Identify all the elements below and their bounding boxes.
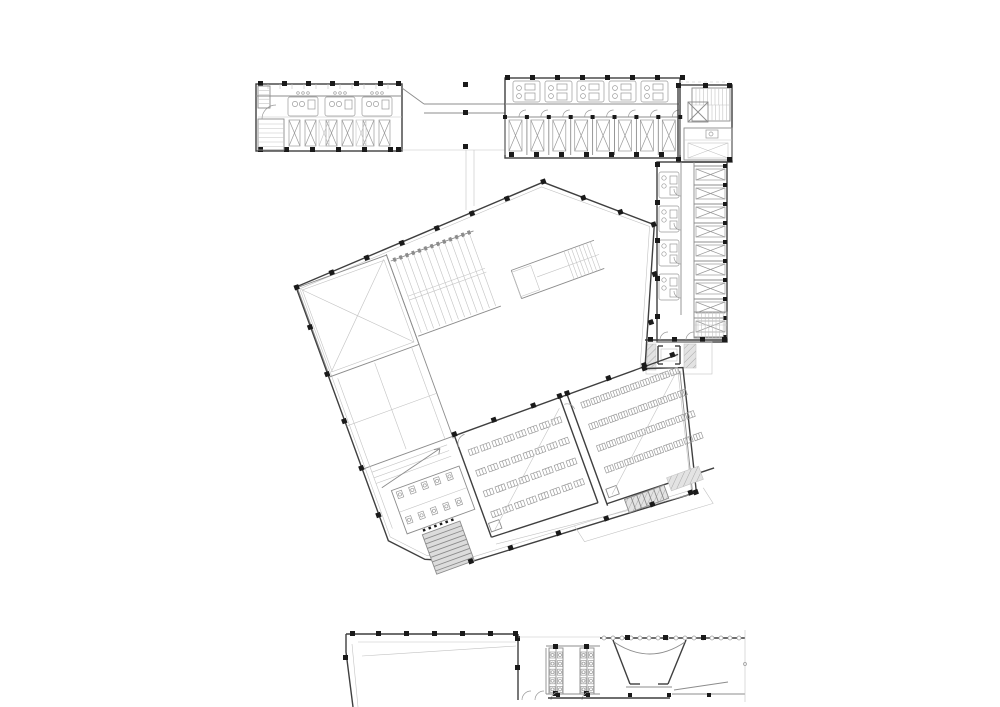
- column: [723, 221, 727, 225]
- column: [634, 115, 638, 119]
- column: [722, 337, 727, 342]
- column: [628, 693, 632, 697]
- hatched-stair: [684, 344, 696, 368]
- column: [509, 152, 514, 157]
- column: [258, 147, 263, 152]
- floor-plan-page: [0, 0, 1000, 707]
- column: [680, 75, 685, 80]
- column: [534, 152, 539, 157]
- column: [591, 115, 595, 119]
- arc-column: [737, 636, 741, 640]
- column: [625, 635, 630, 640]
- arc-column: [611, 636, 615, 640]
- column: [555, 75, 560, 80]
- column: [343, 655, 348, 660]
- column: [354, 81, 359, 86]
- column: [505, 75, 510, 80]
- column: [569, 115, 573, 119]
- column: [282, 81, 287, 86]
- column: [584, 152, 589, 157]
- column: [378, 81, 383, 86]
- column: [723, 259, 727, 263]
- column: [634, 152, 639, 157]
- column: [463, 82, 468, 87]
- column: [723, 240, 727, 244]
- column: [503, 115, 507, 119]
- column: [284, 147, 289, 152]
- column: [723, 164, 727, 168]
- column: [655, 200, 660, 205]
- column: [556, 693, 560, 697]
- column: [388, 147, 393, 152]
- column: [463, 110, 468, 115]
- column: [630, 75, 635, 80]
- column: [330, 81, 335, 86]
- column: [723, 297, 727, 301]
- column: [707, 693, 711, 697]
- column: [530, 75, 535, 80]
- column: [432, 631, 437, 636]
- column: [559, 152, 564, 157]
- column: [723, 183, 727, 187]
- hatched-stair: [647, 344, 656, 370]
- column: [655, 162, 660, 167]
- column: [336, 147, 341, 152]
- column: [605, 75, 610, 80]
- column: [362, 147, 367, 152]
- column: [678, 115, 682, 119]
- column: [613, 115, 617, 119]
- column: [723, 278, 727, 282]
- column: [584, 644, 589, 649]
- column: [396, 147, 401, 152]
- column: [723, 202, 727, 206]
- column: [655, 238, 660, 243]
- column: [727, 83, 732, 88]
- column: [586, 693, 590, 697]
- column: [727, 157, 732, 162]
- column: [513, 631, 518, 636]
- column: [547, 115, 551, 119]
- column: [655, 314, 660, 319]
- column: [376, 631, 381, 636]
- column: [553, 644, 558, 649]
- column: [663, 635, 668, 640]
- column: [258, 81, 263, 86]
- column: [656, 115, 660, 119]
- arc-column: [656, 636, 660, 640]
- paper-background: [0, 0, 1000, 707]
- arc-column: [683, 636, 687, 640]
- column: [525, 115, 529, 119]
- column: [703, 83, 708, 88]
- column: [672, 337, 677, 342]
- column: [700, 337, 705, 342]
- column: [609, 152, 614, 157]
- column: [460, 631, 465, 636]
- column: [667, 693, 671, 697]
- arc-column: [620, 636, 624, 640]
- column: [659, 152, 664, 157]
- arc-column: [674, 636, 678, 640]
- column: [580, 75, 585, 80]
- column: [463, 144, 468, 149]
- arc-column: [638, 636, 642, 640]
- arc-column: [719, 636, 723, 640]
- floorplan-canvas: [0, 0, 1000, 707]
- column: [488, 631, 493, 636]
- column: [310, 147, 315, 152]
- column: [676, 83, 681, 88]
- column: [648, 337, 653, 342]
- column: [701, 635, 706, 640]
- column: [723, 316, 727, 320]
- column: [655, 75, 660, 80]
- arc-column: [647, 636, 651, 640]
- column: [404, 631, 409, 636]
- column: [396, 81, 401, 86]
- arc-column: [602, 636, 606, 640]
- column: [350, 631, 355, 636]
- column: [655, 276, 660, 281]
- column: [306, 81, 311, 86]
- arc-column: [692, 636, 696, 640]
- arc-column: [710, 636, 714, 640]
- column: [515, 665, 520, 670]
- arc-column: [728, 636, 732, 640]
- column: [676, 157, 681, 162]
